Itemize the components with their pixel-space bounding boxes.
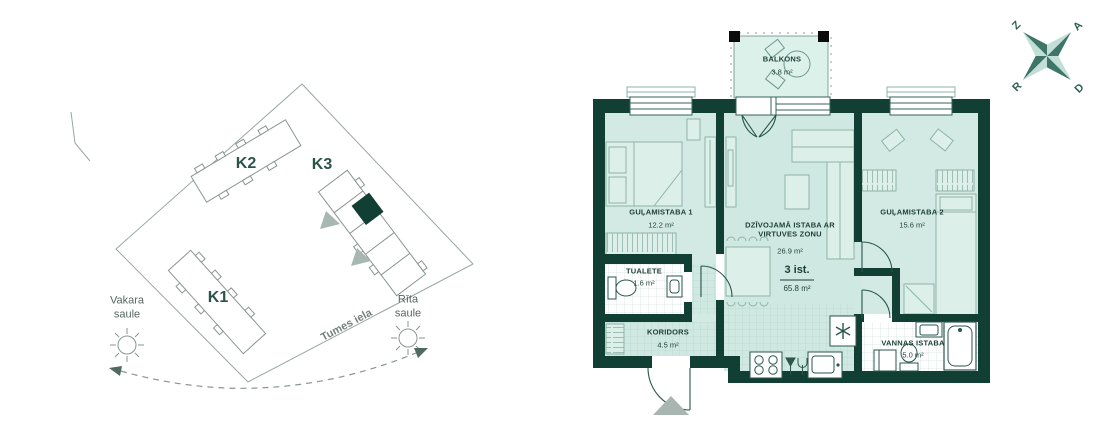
room-area-living: 26.9 m² [777, 246, 802, 255]
sun-east-label: Rīta saule [386, 293, 430, 321]
room-area-bedroom2: 15.6 m² [899, 220, 924, 229]
compass-east-label: A [1071, 19, 1085, 33]
room-label-bedroom1: GUĻAMISTABA 1 [629, 207, 692, 216]
kitchen-basin-icon [808, 352, 842, 378]
room-label-toilet: TUALETE [626, 266, 662, 275]
building-k1-label: K1 [208, 288, 228, 308]
sun-path-arc [121, 353, 416, 388]
plot-boundary [116, 84, 473, 382]
sun-path-arrow-west-icon [109, 366, 122, 376]
compass-north-label: Z [1010, 19, 1023, 32]
compass-south-label: D [1072, 81, 1086, 95]
fridge-snowflake-icon [830, 316, 856, 346]
building-k3 [315, 167, 430, 299]
building-k2-label: K2 [236, 154, 256, 174]
bed-1 [606, 142, 682, 206]
tv-cabinet [726, 137, 736, 207]
building-k3-label: K3 [312, 155, 332, 175]
room-label-living: DZĪVOJAMĀ ISTABA AR VIRTUVES ZONU [731, 221, 849, 240]
wardrobe-1 [606, 233, 676, 256]
entrance-arrow-icon [653, 396, 689, 415]
compass-west-label: R [1010, 80, 1024, 94]
floorplan-page: Z A R D K1 K2 K3 Vakara saule Rīta saule… [0, 0, 1110, 445]
summary-rooms-label: 3 ist. [784, 264, 809, 278]
bathtub-icon [944, 322, 976, 370]
room-label-corridor: KORIDORS [647, 327, 689, 336]
room-area-balkons: 3.8 m² [771, 67, 792, 76]
sun-path-arrow-east-icon [414, 348, 428, 358]
room-area-corridor: 4.5 m² [657, 340, 678, 349]
room-label-balkons: BALKONS [763, 54, 801, 63]
balcony [729, 31, 831, 101]
coffee-table [785, 175, 809, 209]
balcony-post-left [729, 31, 740, 42]
balcony-post-right [818, 31, 829, 42]
sun-west-icon [110, 328, 144, 362]
room-area-bathroom: 5.0 m² [902, 350, 923, 359]
wardrobe-2b [936, 170, 974, 191]
room-label-bathroom: VANNAS ISTABA [881, 338, 944, 347]
plan-drawing: Z A R D [0, 0, 1110, 445]
window-2 [890, 97, 952, 115]
bathroom-sink-icon [916, 322, 942, 337]
entrance-gap [652, 356, 690, 368]
desk-2 [904, 284, 934, 314]
summary-total-area: 65.8 m² [783, 284, 810, 294]
sun-west-label: Vakara saule [101, 294, 153, 322]
dresser-1 [687, 119, 700, 140]
balcony-door-window [736, 97, 830, 115]
coat-rack [606, 324, 624, 354]
room-area-toilet: 1.6 m² [633, 278, 654, 287]
room-area-bedroom1: 12.2 m² [648, 220, 673, 229]
parcel-corner-line [71, 112, 90, 161]
summary-divider [780, 280, 814, 281]
cabinet-1 [705, 137, 716, 207]
toilet-door-gap [684, 272, 692, 302]
site-plan [71, 84, 473, 388]
wardrobe-2a [858, 170, 896, 191]
window-1 [630, 97, 692, 115]
compass-rose-icon: Z A R D [979, 0, 1110, 126]
toilet-sink-icon [667, 276, 682, 297]
dining-table [726, 237, 770, 306]
washing-machine-icon [874, 350, 896, 371]
stove-icon [750, 352, 782, 378]
room-label-bedroom2: GUĻAMISTABA 2 [880, 207, 943, 216]
